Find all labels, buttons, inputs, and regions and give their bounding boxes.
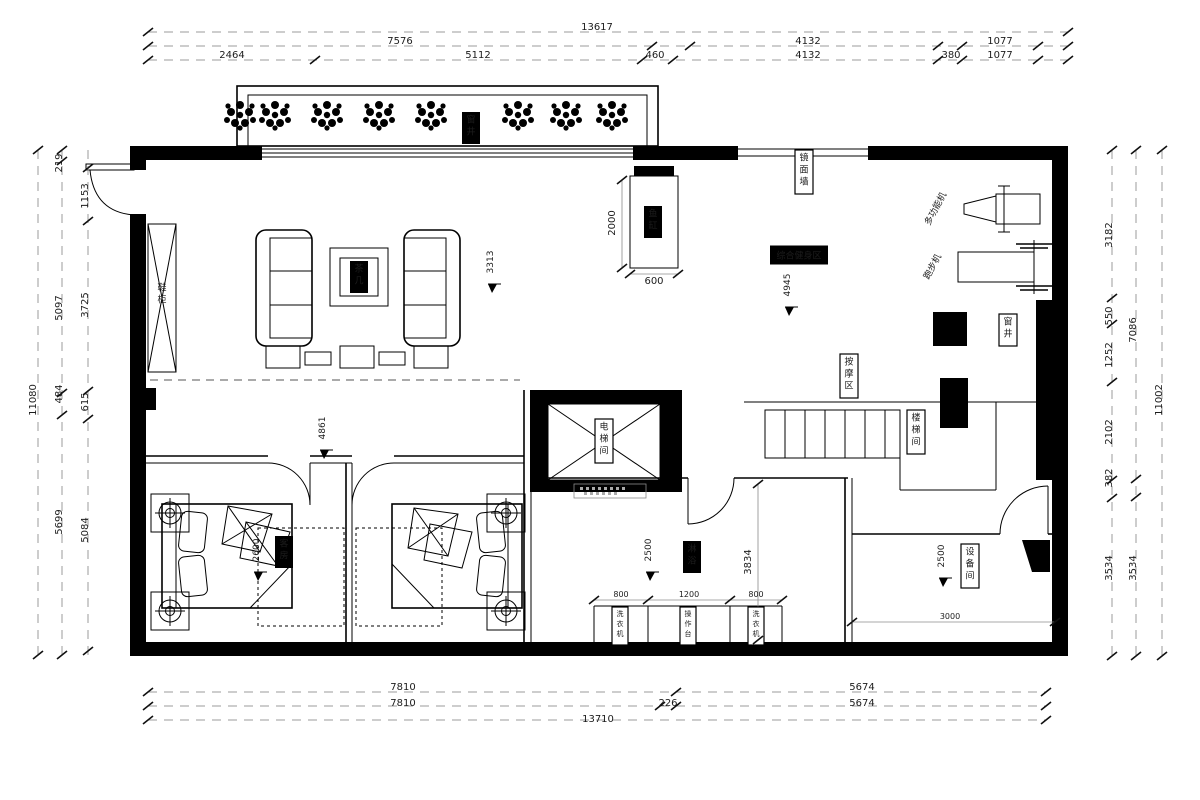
dimension-text: 615 — [80, 392, 91, 411]
dimension-text: 4945 — [783, 274, 793, 297]
entry-door — [86, 164, 134, 215]
dim-4132: 4132 — [795, 50, 820, 61]
dim-460: 460 — [645, 50, 664, 61]
dim-5699: 5699 — [54, 509, 65, 534]
label-washer-right: 洗衣机 — [748, 607, 764, 645]
dimension-text: 460 — [645, 50, 664, 61]
label-fish-tank: 鱼缸 — [648, 207, 657, 231]
sofa-right — [404, 230, 460, 346]
dim-5674: 5674 — [849, 698, 874, 709]
plant-icon — [311, 101, 343, 131]
dim-4132: 4132 — [795, 36, 820, 47]
hall-door — [688, 478, 734, 524]
dimension-ticks — [33, 28, 1167, 724]
label-mirror-wall: 镜面墙 — [799, 151, 808, 187]
bedroom2-door — [352, 463, 394, 505]
label-washer-left: 洗衣机 — [612, 607, 628, 645]
dimension-text: 2102 — [1104, 419, 1115, 444]
dimension-text: 3534 — [1104, 555, 1115, 580]
dim-2500: 2500 — [644, 538, 659, 581]
dimension-text: 3834 — [743, 549, 754, 574]
label-lightwell-top: 窗井 — [466, 113, 475, 137]
bedroom1-door — [268, 463, 310, 505]
floor-plan-drawing: 1361775764132107724645112460413238010777… — [0, 0, 1200, 800]
level-marker-icon — [646, 572, 655, 581]
plant-icon — [415, 101, 447, 131]
dimension-text: 1153 — [80, 183, 91, 208]
label-lightwell-right: 窗井 — [1003, 315, 1012, 339]
interior-dim-lines — [758, 484, 1055, 640]
dim-2464: 2464 — [219, 50, 244, 61]
dimension-text: 3534 — [1128, 555, 1139, 580]
bedroom1 — [151, 494, 344, 630]
plant-icon — [596, 101, 628, 131]
dim-3834: 3834 — [743, 549, 754, 574]
plant-icon — [502, 101, 534, 131]
label-washer-left: 洗衣机 — [617, 609, 624, 638]
label-shower: 淋浴 — [683, 541, 701, 573]
dimension-text: 1077 — [987, 36, 1012, 47]
dimension-text: 7576 — [387, 36, 412, 47]
dim-3000: 3000 — [940, 612, 960, 621]
plant-icon — [363, 101, 395, 131]
label-treadmill: 跑步机 — [921, 252, 944, 281]
label-elevator-room: 电梯间 — [595, 419, 613, 463]
level-marker-icon — [785, 307, 794, 316]
dimension-text: 2464 — [219, 50, 244, 61]
label-equipment-room: 设备间 — [961, 544, 979, 588]
dim-1252: 1252 — [1104, 342, 1115, 367]
dim-13710: 13710 — [582, 714, 614, 725]
annotation-layer: 1361775764132107724645112460413238010777… — [28, 22, 1165, 725]
dim-380: 380 — [941, 50, 960, 61]
dim-3534: 3534 — [1128, 555, 1139, 580]
dimension-text: 4132 — [795, 36, 820, 47]
label-massage-area: 按摩区 — [844, 355, 853, 391]
dim-1153: 1153 — [80, 183, 91, 208]
dimension-text: 380 — [941, 50, 960, 61]
nightstand-lamp-icon — [487, 592, 525, 630]
label-stair-room: 楼梯间 — [911, 411, 920, 447]
treadmill — [958, 240, 1052, 294]
dimension-text: 2500 — [644, 538, 654, 561]
bedroom2 — [356, 494, 525, 630]
dimension-text: 4861 — [318, 417, 328, 440]
label-guest-room: 客房 — [275, 536, 293, 568]
dimension-text: 3725 — [80, 292, 91, 317]
top-windows — [262, 149, 868, 157]
dim-5112: 5112 — [465, 50, 490, 61]
dimension-text: 7810 — [390, 698, 415, 709]
label-equipment-room: 设备间 — [965, 546, 974, 581]
dimension-text: 5084 — [80, 517, 91, 542]
dim-1200: 1200 — [679, 590, 699, 599]
label-shower: 淋浴 — [687, 542, 696, 566]
lightwell-planter — [224, 86, 658, 146]
dimension-text: 3182 — [1104, 222, 1115, 247]
dimension-text: 600 — [644, 276, 663, 287]
label-mirror-wall: 镜面墙 — [795, 150, 813, 194]
dimension-text: 3313 — [486, 251, 496, 274]
label-fish-tank: 鱼缸 — [644, 206, 662, 238]
dimension-text: 1200 — [679, 590, 699, 599]
plant-icon — [224, 101, 256, 131]
label-lightwell-right: 窗井 — [999, 314, 1017, 346]
dim-5084: 5084 — [80, 517, 91, 542]
dim-3182: 3182 — [1104, 222, 1115, 247]
dimension-text: 7810 — [390, 682, 415, 693]
plant-icon — [259, 101, 291, 131]
dim-600: 600 — [644, 276, 663, 287]
dimension-text: 2000 — [607, 210, 618, 235]
dim-4861: 4861 — [318, 417, 333, 459]
dim-800: 800 — [613, 590, 628, 599]
dimension-text: 11002 — [1154, 384, 1165, 416]
label-elevator-room: 电梯间 — [599, 420, 608, 456]
dimension-text: 800 — [613, 590, 628, 599]
dim-800: 800 — [748, 590, 763, 599]
dim-11080: 11080 — [28, 384, 39, 416]
level-marker-icon — [488, 284, 497, 293]
dim-11002: 11002 — [1154, 384, 1165, 416]
dim-1077: 1077 — [987, 50, 1012, 61]
dim-3534: 3534 — [1104, 555, 1115, 580]
multi-gym-machine — [964, 186, 1040, 232]
plant-icon — [550, 101, 582, 131]
dim-1077: 1077 — [987, 36, 1012, 47]
label-treadmill: 跑步机 — [921, 252, 944, 281]
label-worktop: 操作台 — [680, 607, 696, 645]
dimension-text: 5674 — [849, 698, 874, 709]
dimension-text: 5674 — [849, 682, 874, 693]
dimension-text: 2600 — [252, 538, 262, 561]
dimension-text: 5112 — [465, 50, 490, 61]
level-marker-icon — [939, 578, 948, 587]
dim-5097: 5097 — [54, 295, 65, 320]
label-worktop: 操作台 — [685, 609, 692, 638]
label-shoe-cabinet: 鞋柜 — [157, 281, 166, 305]
nightstand-lamp-icon — [151, 592, 189, 630]
dimension-text: 2500 — [937, 544, 947, 567]
label-tea-table: 茶几 — [350, 261, 368, 293]
label-multi-gym: 多功能机 — [922, 190, 950, 227]
equipment-room-door — [1000, 486, 1048, 534]
dimension-text: 800 — [748, 590, 763, 599]
dim-3725: 3725 — [80, 292, 91, 317]
stairs — [744, 402, 1036, 490]
dimension-text: 1252 — [1104, 342, 1115, 367]
nightstand-lamp-icon — [487, 494, 525, 532]
dimension-text: 4132 — [795, 50, 820, 61]
dim-615: 615 — [80, 392, 91, 411]
dim-7810: 7810 — [390, 698, 415, 709]
dim-2102: 2102 — [1104, 419, 1115, 444]
label-washer-right: 洗衣机 — [753, 609, 760, 638]
stools — [266, 346, 448, 368]
dim-7086: 7086 — [1128, 317, 1139, 342]
dimension-text: 5097 — [54, 295, 65, 320]
label-massage-area: 按摩区 — [840, 354, 858, 398]
dimension-text: 5699 — [54, 509, 65, 534]
dim-7576: 7576 — [387, 36, 412, 47]
sofa-left — [256, 230, 312, 346]
level-marker-icon — [320, 450, 329, 459]
dimension-chains — [38, 32, 1162, 720]
label-stair-room: 楼梯间 — [907, 410, 925, 454]
dim-3313: 3313 — [486, 251, 501, 293]
floor-plan-canvas: 1361775764132107724645112460413238010777… — [0, 0, 1200, 800]
dim-4945: 4945 — [783, 274, 798, 316]
label-fitness-zone: 综合健身区 — [776, 250, 821, 262]
dimension-text: 3000 — [940, 612, 960, 621]
dim-2500: 2500 — [937, 544, 952, 587]
dimension-text: 11080 — [28, 384, 39, 416]
dimension-text: 1077 — [987, 50, 1012, 61]
label-shoe-cabinet: 鞋柜 — [157, 281, 166, 305]
level-marker-icon — [254, 572, 263, 581]
label-tea-table: 茶几 — [354, 262, 363, 286]
dimension-text: 13710 — [582, 714, 614, 725]
label-guest-room: 客房 — [279, 537, 288, 561]
dim-7810: 7810 — [390, 682, 415, 693]
dim-13617: 13617 — [581, 22, 613, 33]
label-lightwell-top: 窗井 — [462, 112, 480, 144]
label-fitness-zone: 综合健身区 — [771, 246, 828, 264]
dimension-text: 7086 — [1128, 317, 1139, 342]
dim-5674: 5674 — [849, 682, 874, 693]
dimension-text: 13617 — [581, 22, 613, 33]
label-multi-gym: 多功能机 — [922, 190, 950, 227]
dim-2000: 2000 — [607, 210, 618, 235]
dim-2600: 2600 — [252, 538, 267, 581]
